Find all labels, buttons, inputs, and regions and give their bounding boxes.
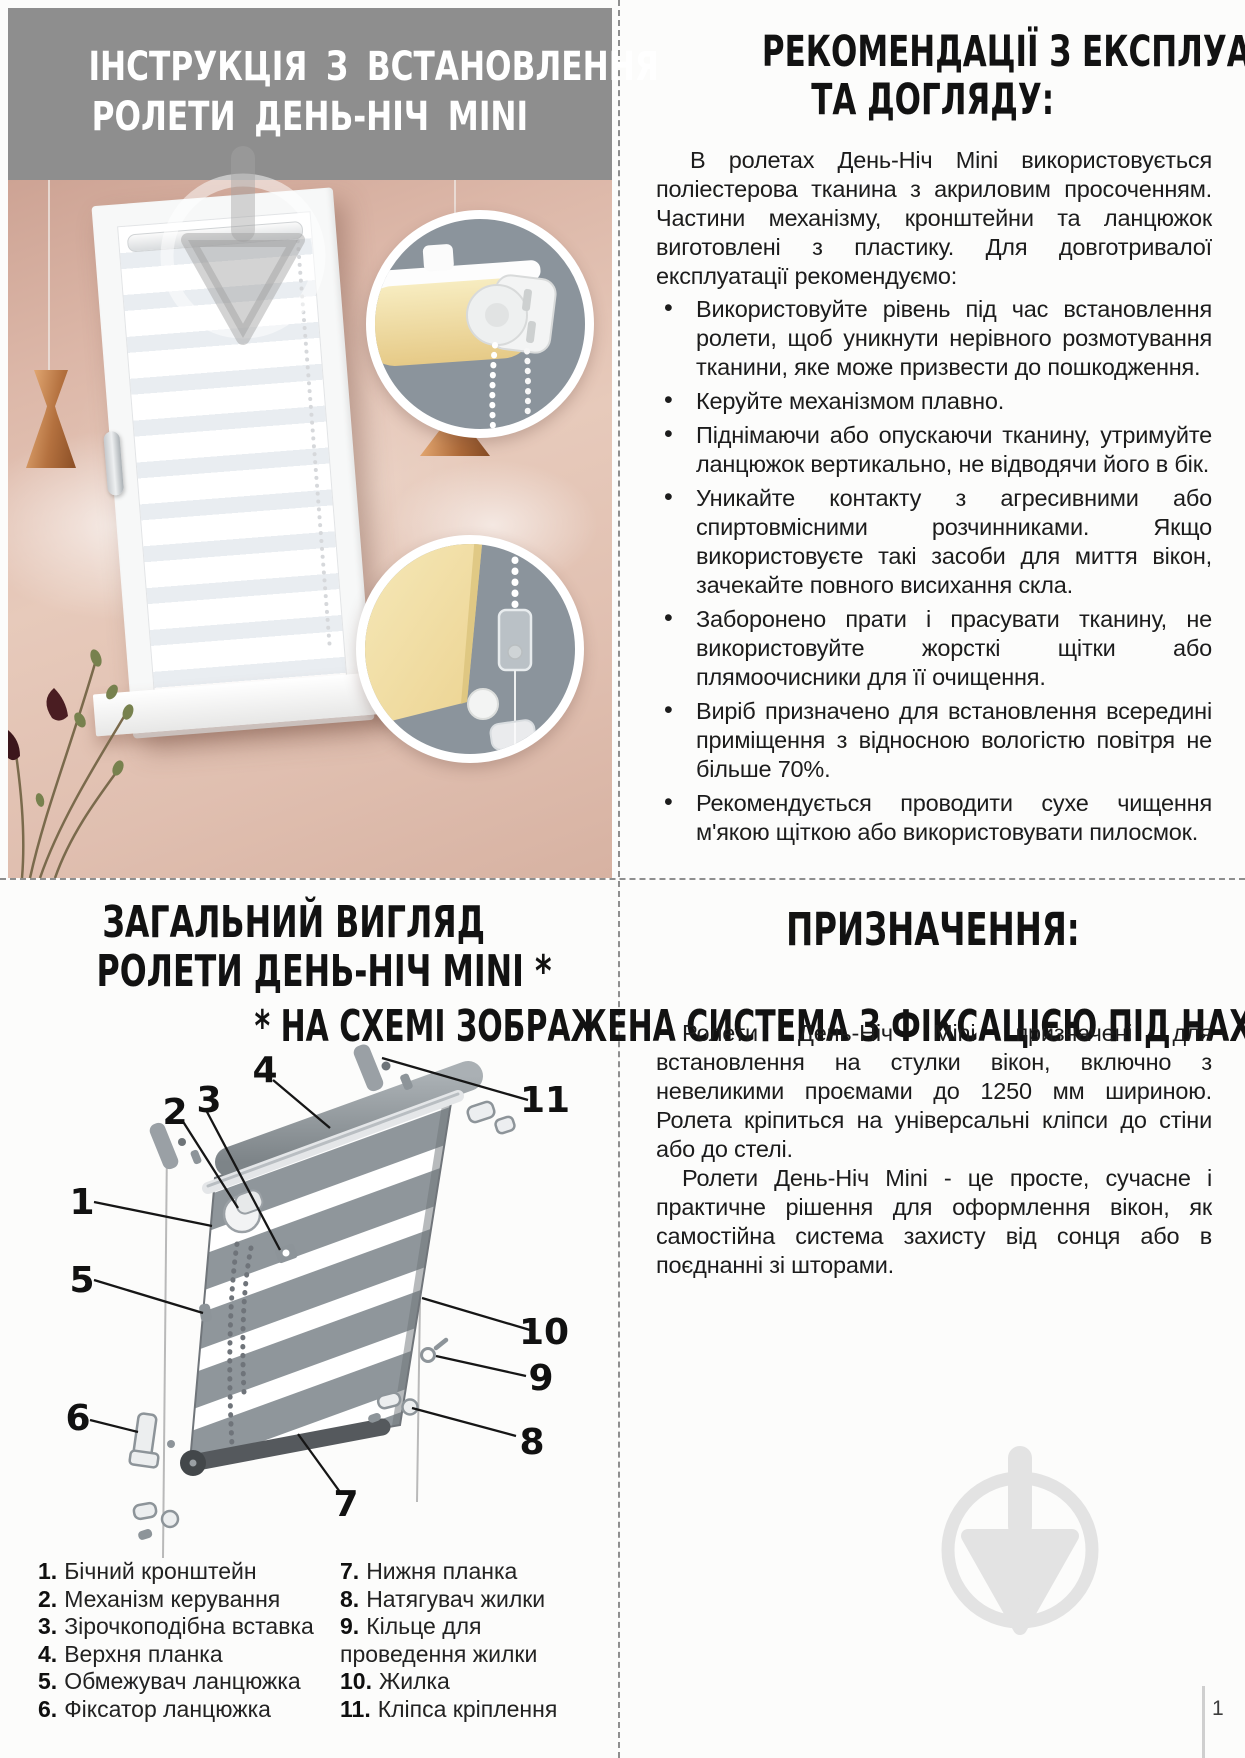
care-intro: В ролетах День-Ніч Mini використовується… [656, 146, 1212, 291]
care-bullet: Рекомендується проводити сухе чищення м'… [656, 789, 1212, 847]
care-bullet: Використовуйте рівень під час встановлен… [656, 295, 1212, 382]
callout-6: 6 [65, 1398, 90, 1439]
part-item: 11.Кліпса кріплення [340, 1696, 590, 1724]
callout-10: 10 [519, 1312, 569, 1353]
purpose-paragraph-1: Ролети День-Ніч Mini призначені для вста… [656, 1019, 1212, 1164]
callout-9: 9 [528, 1358, 553, 1399]
care-title-line2: ТА ДОГЛЯДУ: [812, 76, 1055, 124]
part-item: 10.Жилка [340, 1668, 590, 1696]
parts-column-right: 7.Нижня планка 8.Натягувач жилки 9.Кільц… [340, 1558, 590, 1723]
inset-fixator-photo [356, 535, 584, 763]
install-title-line1: ІНСТРУКЦІЯ З ВСТАНОВЛЕННЯ [88, 42, 658, 92]
lamp-cord [48, 180, 50, 372]
care-bullet: Заборонено прати і прасувати тканину, не… [656, 605, 1212, 692]
callout-11: 11 [520, 1080, 570, 1121]
page-number: 1 [1212, 1697, 1224, 1721]
part-item: 3.Зірочкоподібна вставка [38, 1613, 340, 1641]
care-bullet: Керуйте механізмом плавно. [656, 387, 1212, 416]
pendant-lamp-icon [26, 370, 76, 468]
watermark-plumb-logo-icon [930, 1438, 1110, 1643]
purpose-paragraph-2: Ролети День-Ніч Mini - це просте, сучасн… [656, 1164, 1212, 1280]
callout-8: 8 [519, 1422, 544, 1463]
chain-fixator [129, 1413, 175, 1468]
blind-cassette [127, 221, 304, 253]
guide-wire [163, 1142, 167, 1558]
part-item: 7.Нижня планка [340, 1558, 590, 1586]
bead-chain [296, 239, 332, 646]
callout-5: 5 [69, 1260, 94, 1301]
callout-3: 3 [196, 1080, 221, 1121]
care-title-line1: РЕКОМЕНДАЦІЇ З ЕКСПЛУАТАЦІЇ [762, 28, 1245, 76]
tulip-icon [46, 688, 68, 721]
blind-exploded-diagram: 1 2 3 4 5 6 7 8 9 10 11 [30, 1030, 580, 1570]
horizontal-dashed-divider [0, 878, 1245, 880]
care-title: РЕКОМЕНДАЦІЇ З ЕКСПЛУАТАЦІЇ ТА ДОГЛЯДУ: [648, 28, 1218, 124]
overview-title: ЗАГАЛЬНИЙ ВИГЛЯД РОЛЕТИ ДЕНЬ-НІЧ MINI * [8, 898, 580, 996]
mount-clip [352, 1042, 414, 1093]
room-photo [8, 180, 612, 878]
install-header: ІНСТРУКЦІЯ З ВСТАНОВЛЕННЯ РОЛЕТИ ДЕНЬ-НІ… [8, 8, 612, 180]
part-item: 6.Фіксатор ланцюжка [38, 1696, 340, 1724]
part-item: 8.Натягувач жилки [340, 1586, 590, 1614]
install-title: ІНСТРУКЦІЯ З ВСТАНОВЛЕННЯ РОЛЕТИ ДЕНЬ-НІ… [8, 42, 612, 142]
overview-header: ЗАГАЛЬНИЙ ВИГЛЯД РОЛЕТИ ДЕНЬ-НІЧ MINI * … [8, 898, 580, 1051]
callout-4: 4 [252, 1050, 277, 1091]
care-bullet: Виріб призначено для встановлення всеред… [656, 697, 1212, 784]
callout-1: 1 [69, 1182, 94, 1223]
care-bullet-list: Використовуйте рівень під час встановлен… [648, 295, 1218, 847]
part-item: 2.Механізм керування [38, 1586, 340, 1614]
install-title-line2: РОЛЕТИ ДЕНЬ-НІЧ MINI [92, 92, 529, 142]
parts-legend: 1.Бічний кронштейн 2.Механізм керування … [38, 1558, 598, 1723]
care-bullet: Піднімаючи або опускаючи тканину, утриму… [656, 421, 1212, 479]
fastener-parts [133, 1502, 178, 1541]
callout-7: 7 [333, 1484, 358, 1525]
parts-column-left: 1.Бічний кронштейн 2.Механізм керування … [38, 1558, 340, 1723]
callout-2: 2 [162, 1092, 187, 1133]
purpose-title: ПРИЗНАЧЕННЯ: [648, 905, 1218, 955]
part-item: 4.Верхня планка [38, 1641, 340, 1669]
purpose-section: ПРИЗНАЧЕННЯ: Ролети День-Ніч Mini призна… [648, 905, 1218, 1280]
overview-title-line1: ЗАГАЛЬНИЙ ВИГЛЯД [103, 898, 486, 947]
part-item: 5.Обмежувач ланцюжка [38, 1668, 340, 1696]
care-bullet: Уникайте контакту з агресивними або спир… [656, 484, 1212, 600]
part-item: 1.Бічний кронштейн [38, 1558, 340, 1586]
plant-decoration [8, 600, 210, 878]
care-section: РЕКОМЕНДАЦІЇ З ЕКСПЛУАТАЦІЇ ТА ДОГЛЯДУ: … [648, 28, 1218, 852]
side-clip-parts [466, 1100, 516, 1134]
tulip-icon [8, 730, 20, 760]
overview-title-line2: РОЛЕТИ ДЕНЬ-НІЧ MINI * [96, 947, 551, 996]
inset-mechanism-photo [366, 210, 594, 438]
wire-ring [422, 1349, 435, 1362]
part-item: 9.Кільце для проведення жилки [340, 1613, 590, 1668]
instruction-leaflet-page: ІНСТРУКЦІЯ З ВСТАНОВЛЕННЯ РОЛЕТИ ДЕНЬ-НІ… [0, 0, 1245, 1758]
footer-divider [1202, 1686, 1205, 1758]
